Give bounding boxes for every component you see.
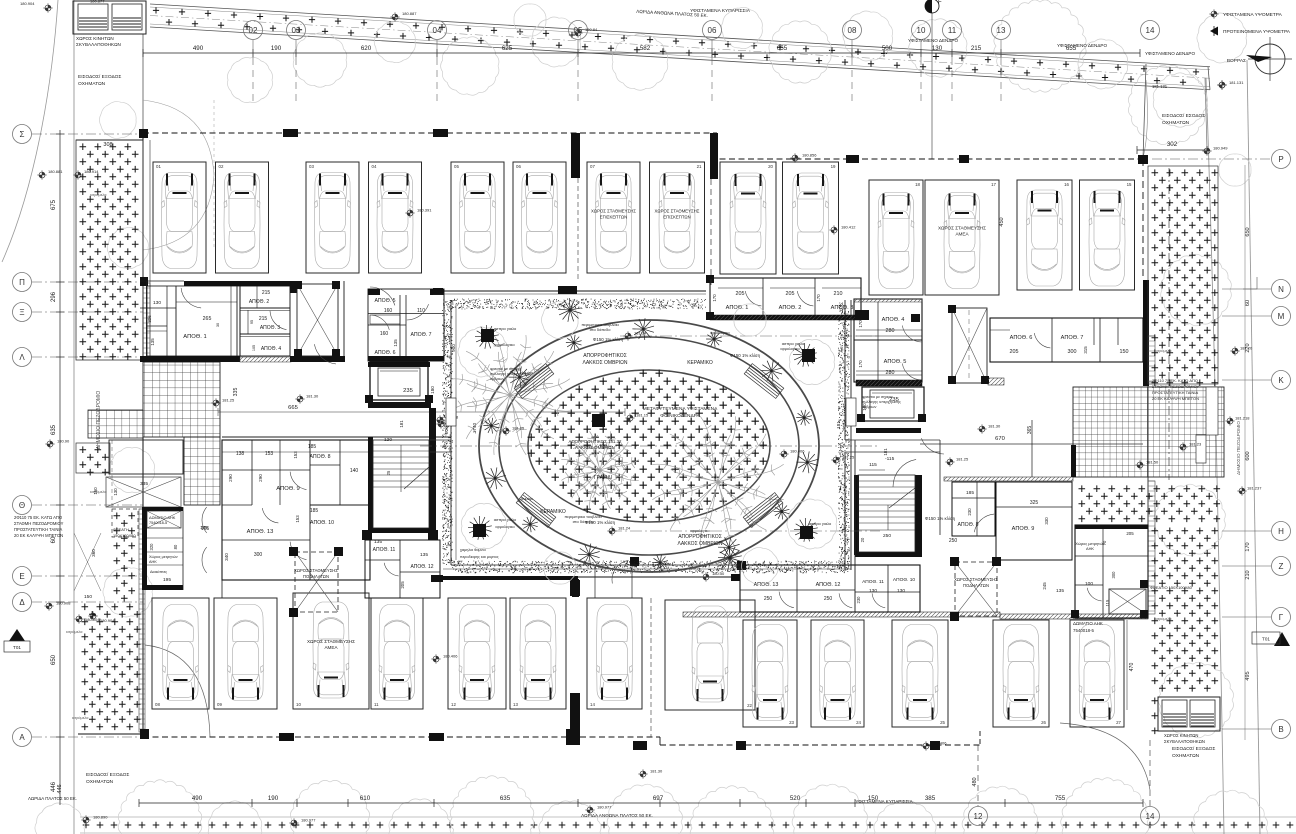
svg-text:ΑΠΟΘ. 13: ΑΠΟΘ. 13 — [754, 582, 779, 588]
svg-text:2Φ110 75 ΕΚ. ΚΑΤΩ ΑΠΟ: 2Φ110 75 ΕΚ. ΚΑΤΩ ΑΠΟ — [1152, 378, 1198, 383]
svg-text:Χώρος μετρητών: Χώρος μετρητών — [149, 555, 178, 559]
svg-text:385: 385 — [925, 795, 936, 802]
svg-text:190: 190 — [268, 795, 279, 802]
svg-text:ΑΠΟΘ. 7: ΑΠΟΘ. 7 — [410, 332, 431, 338]
svg-text:300: 300 — [1111, 571, 1116, 579]
svg-text:582: 582 — [640, 45, 651, 52]
svg-text:ΑΠΟΘ. 5: ΑΠΟΘ. 5 — [374, 298, 395, 304]
svg-text:181.25: 181.25 — [512, 426, 525, 431]
svg-text:04: 04 — [433, 26, 442, 35]
svg-text:755: 755 — [1055, 795, 1066, 802]
svg-text:ΑΠΟΘ. 7: ΑΠΟΘ. 7 — [1061, 335, 1084, 341]
svg-text:290: 290 — [258, 474, 263, 482]
svg-text:335: 335 — [140, 481, 148, 487]
svg-text:665: 665 — [288, 405, 298, 411]
svg-text:150Χ120Χ80: 150Χ120Χ80 — [113, 533, 136, 538]
svg-text:170: 170 — [858, 360, 863, 368]
svg-text:12: 12 — [451, 702, 456, 707]
svg-text:150: 150 — [84, 594, 92, 600]
svg-text:ΑΗΚ: ΑΗΚ — [1086, 546, 1094, 551]
svg-text:19: 19 — [831, 164, 836, 169]
svg-text:181: 181 — [836, 421, 841, 429]
svg-text:470: 470 — [1129, 663, 1135, 672]
svg-text:15: 15 — [1127, 182, 1132, 187]
svg-text:340: 340 — [224, 553, 229, 561]
svg-text:14: 14 — [1146, 26, 1155, 35]
svg-text:ΧΩΡΟΣ ΣΤΑΘΜΕΥΣΗΣ: ΧΩΡΟΣ ΣΤΑΘΜΕΥΣΗΣ — [655, 209, 700, 214]
svg-text:205: 205 — [1010, 349, 1019, 355]
svg-text:20 ΕΚ ΚΑΛΥΨΗ ΜΠΕΤΟΝ: 20 ΕΚ ΚΑΛΥΨΗ ΜΠΕΤΟΝ — [1152, 396, 1199, 401]
svg-text:ΠΡΟΤΕΙΝΟΜΕΝΑ ΥΨΟΜΕΤΡΑ: ΠΡΟΤΕΙΝΟΜΕΝΑ ΥΨΟΜΕΤΡΑ — [1223, 29, 1291, 35]
svg-text:180.887: 180.887 — [402, 11, 417, 16]
svg-text:100: 100 — [1085, 581, 1093, 587]
svg-text:135: 135 — [374, 539, 382, 545]
svg-text:ΕΠΙΣΚΕΠΤΩΝ: ΕΠΙΣΚΕΠΤΩΝ — [663, 215, 691, 220]
svg-text:446: 446 — [57, 784, 63, 793]
svg-text:635: 635 — [51, 424, 57, 435]
svg-text:ΛΑΚΚΟΣ ΟΜΒΡΙΩΝ: ΛΑΚΚΟΣ ΟΜΒΡΙΩΝ — [582, 360, 627, 366]
svg-text:P: P — [1278, 155, 1283, 164]
svg-text:210: 210 — [1245, 570, 1251, 579]
svg-text:215: 215 — [259, 316, 268, 322]
svg-text:900: 900 — [451, 344, 456, 352]
svg-text:κιτρόμελα: κιτρόμελα — [1155, 617, 1172, 621]
svg-text:ΑΠΟΘ. 4: ΑΠΟΘ. 4 — [882, 317, 905, 323]
svg-text:ΧΩΡΟΣ ΚΙΝΗΤΩΝ: ΧΩΡΟΣ ΚΙΝΗΤΩΝ — [1164, 733, 1198, 738]
svg-text:315: 315 — [1083, 346, 1088, 354]
svg-text:ΠΡΟΣΤΑΤΕΥΤΙΚΗ ΤΑΙΝΙΑ: ΠΡΟΣΤΑΤΕΥΤΙΚΗ ΤΑΙΝΙΑ — [1152, 390, 1199, 395]
svg-text:B: B — [1278, 725, 1283, 734]
svg-text:185: 185 — [310, 508, 319, 514]
svg-text:ΧΩΡΟΣ ΚΙΝΗΤΩΝ: ΧΩΡΟΣ ΚΙΝΗΤΩΝ — [76, 36, 114, 41]
svg-text:06: 06 — [516, 164, 521, 169]
svg-text:130: 130 — [897, 588, 905, 594]
svg-text:ΑΜΕΑ: ΑΜΕΑ — [324, 645, 338, 650]
svg-text:320: 320 — [149, 543, 154, 551]
svg-text:95: 95 — [250, 320, 254, 324]
svg-text:ΑΠΟΘ. 2: ΑΠΟΘ. 2 — [779, 305, 802, 311]
svg-text:ΚΕΡΑΜΙΚΟ: ΚΕΡΑΜΙΚΟ — [687, 360, 713, 366]
svg-text:14: 14 — [1146, 812, 1155, 821]
svg-text:185: 185 — [308, 444, 317, 450]
svg-text:180.914: 180.914 — [84, 169, 99, 174]
svg-text:ΕΙΣΟΔΟΣ/ ΕΞΟΔΟΣ: ΕΙΣΟΔΟΣ/ ΕΞΟΔΟΣ — [86, 772, 129, 778]
svg-text:1740: 1740 — [472, 422, 477, 433]
svg-text:215: 215 — [262, 290, 271, 296]
svg-text:110: 110 — [417, 308, 425, 314]
svg-text:610: 610 — [360, 795, 371, 802]
svg-text:181.50: 181.50 — [1146, 460, 1159, 465]
svg-text:φρεατιο με σιχαρα: φρεατιο με σιχαρα — [862, 395, 893, 399]
svg-text:11: 11 — [948, 26, 957, 35]
svg-text:11: 11 — [374, 702, 379, 707]
svg-text:181.34: 181.34 — [634, 331, 647, 336]
svg-text:180.406: 180.406 — [443, 654, 458, 659]
svg-text:ΑΠΟΘ. 9: ΑΠΟΘ. 9 — [1012, 526, 1035, 532]
svg-text:-115: -115 — [885, 456, 895, 462]
svg-text:ΣΚΥΒΑΛΑΠΟΘΗΚΩΝ: ΣΚΥΒΑΛΑΠΟΘΗΚΩΝ — [1164, 739, 1205, 744]
svg-text:180.881: 180.881 — [48, 169, 63, 174]
svg-text:ΧΩΡΟΣ ΣΤΑΘΜΕΥΣΗΣ: ΧΩΡΟΣ ΣΤΑΘΜΕΥΣΗΣ — [591, 209, 636, 214]
svg-text:17: 17 — [991, 182, 996, 187]
svg-text:ΑΠΟΘ. 10: ΑΠΟΘ. 10 — [893, 577, 915, 583]
svg-text:ΑΠΟΘ. 6: ΑΠΟΘ. 6 — [1010, 335, 1033, 341]
svg-text:ΒΟΡΡΑΣ: ΒΟΡΡΑΣ — [1227, 58, 1246, 64]
svg-text:215: 215 — [971, 45, 982, 52]
svg-text:01: 01 — [156, 164, 161, 169]
svg-text:250: 250 — [949, 538, 958, 544]
svg-text:κιτρόμελα: κιτρόμελα — [66, 630, 83, 634]
svg-text:300: 300 — [254, 552, 263, 558]
svg-text:170: 170 — [712, 294, 717, 302]
svg-text:920: 920 — [444, 426, 449, 434]
svg-text:490: 490 — [193, 45, 204, 52]
svg-text:ΛΑΚΚΟΣ ΟΜΒΡΙΩΝ: ΛΑΚΚΟΣ ΟΜΒΡΙΩΝ — [575, 445, 615, 450]
svg-text:Φ150 1% κλίση: Φ150 1% κλίση — [730, 353, 761, 358]
svg-text:02: 02 — [249, 26, 258, 35]
svg-text:325: 325 — [1030, 500, 1039, 506]
svg-text:ΧΩΡΟΣ ΣΤΑΘΜΕΥΣΗΣ: ΧΩΡΟΣ ΣΤΑΘΜΕΥΣΗΣ — [307, 639, 355, 644]
svg-text:ΑΠΟΘ. 11: ΑΠΟΘ. 11 — [373, 547, 396, 553]
svg-text:ΧΩΡΟΣ ΣΤΑΘΜΕΥΣΗΣ: ΧΩΡΟΣ ΣΤΑΘΜΕΥΣΗΣ — [938, 226, 986, 231]
svg-text:Φ150 1% κλίση: Φ150 1% κλίση — [593, 337, 624, 342]
svg-text:130: 130 — [869, 588, 877, 594]
svg-text:230: 230 — [967, 508, 972, 516]
svg-text:ΑΗΚ: ΑΗΚ — [149, 560, 157, 564]
svg-text:23: 23 — [789, 720, 794, 725]
svg-text:14: 14 — [590, 702, 595, 707]
svg-text:500: 500 — [882, 45, 893, 52]
svg-text:21: 21 — [697, 164, 702, 169]
svg-text:ΠΟΔΗΛΑΤΩΝ: ΠΟΔΗΛΑΤΩΝ — [963, 583, 989, 588]
svg-text:300: 300 — [1068, 349, 1077, 355]
svg-text:Σ: Σ — [20, 130, 25, 139]
svg-text:10: 10 — [296, 702, 301, 707]
svg-text:180.84: 180.84 — [585, 27, 598, 32]
svg-text:250: 250 — [824, 596, 833, 602]
svg-text:ΑΠΟΘ. 12: ΑΠΟΘ. 12 — [816, 582, 841, 588]
svg-text:ΑΠΟΡΡΟΦΗΤΙΚΟΣ: ΑΠΟΡΡΟΦΗΤΙΚΟΣ — [583, 353, 627, 359]
svg-text:Θ: Θ — [19, 501, 25, 510]
svg-text:H: H — [1278, 527, 1284, 536]
svg-text:F: F — [938, 0, 942, 6]
svg-text:170: 170 — [816, 294, 821, 302]
svg-text:170: 170 — [858, 320, 863, 328]
svg-text:181.131: 181.131 — [1152, 84, 1168, 89]
svg-text:205: 205 — [1126, 531, 1134, 536]
svg-text:ΑΠΟΘ. 12: ΑΠΟΘ. 12 — [410, 564, 433, 570]
svg-text:180.30: 180.30 — [712, 571, 725, 576]
svg-text:181: 181 — [399, 420, 404, 428]
svg-text:335: 335 — [233, 388, 239, 397]
svg-text:140: 140 — [350, 468, 359, 474]
svg-text:450: 450 — [999, 217, 1005, 226]
svg-text:135: 135 — [393, 339, 398, 347]
svg-text:ΥΦΙΣΤΑΜΕΝΟ ΔΕΝΔΡΟ: ΥΦΙΣΤΑΜΕΝΟ ΔΕΝΔΡΟ — [1057, 43, 1108, 48]
svg-text:280: 280 — [886, 328, 895, 334]
svg-text:138: 138 — [236, 451, 245, 457]
svg-text:105: 105 — [252, 345, 256, 351]
svg-text:130: 130 — [113, 488, 118, 496]
svg-text:280: 280 — [886, 370, 895, 376]
svg-text:03: 03 — [309, 164, 314, 169]
svg-text:ΥΦΙΣΤΑΜΕΝΑ ΚΥΠΑΡΙΣΣΙΑ: ΥΦΙΣΤΑΜΕΝΑ ΚΥΠΑΡΙΣΣΙΑ — [855, 799, 913, 804]
svg-text:195: 195 — [163, 577, 171, 583]
svg-text:180.977: 180.977 — [301, 818, 316, 823]
svg-text:ΑΠΟΘ. 3: ΑΠΟΘ. 3 — [260, 325, 281, 331]
svg-text:290: 290 — [228, 474, 233, 482]
svg-text:180.90: 180.90 — [57, 439, 70, 444]
svg-text:ΔΩΜΑΤΙΟ ΑΗΚ: ΔΩΜΑΤΙΟ ΑΗΚ — [149, 515, 176, 520]
svg-text:180.904: 180.904 — [20, 1, 35, 6]
svg-text:181.30: 181.30 — [988, 424, 1001, 429]
svg-text:330: 330 — [1044, 517, 1049, 525]
svg-text:ΑΠΟΘ. 6: ΑΠΟΘ. 6 — [374, 350, 395, 356]
svg-text:650: 650 — [1245, 227, 1251, 236]
svg-text:302: 302 — [1167, 141, 1178, 148]
svg-text:ΦΡΕΑΤΙΟ 150Χ100Χ80: ΦΡΕΑΤΙΟ 150Χ100Χ80 — [1150, 585, 1193, 590]
svg-text:18: 18 — [915, 182, 920, 187]
svg-text:Δ: Δ — [19, 598, 25, 607]
svg-text:ΛΑΚΚΟΣ ΟΜΒΡΙΩΝ: ΛΑΚΚΟΣ ΟΜΒΡΙΩΝ — [677, 541, 722, 547]
svg-text:ΟΧΗΜΑΤΩΝ: ΟΧΗΜΑΤΩΝ — [1172, 753, 1200, 759]
svg-text:205: 205 — [736, 291, 745, 297]
svg-text:ΑΠΟΘ. 5: ΑΠΟΘ. 5 — [884, 359, 907, 365]
svg-text:συλλογης υπερχηλισης: συλλογης υπερχηλισης — [490, 372, 529, 376]
svg-text:ΔΗΜΟΣΙΟ ΠΕΖΟΔΡΟΜΙΟ: ΔΗΜΟΣΙΟ ΠΕΖΟΔΡΟΜΙΟ — [1236, 421, 1241, 475]
svg-text:24: 24 — [856, 720, 861, 725]
svg-text:180.877: 180.877 — [90, 0, 105, 4]
svg-text:25: 25 — [386, 470, 391, 475]
svg-text:Φ150 1% κλίση: Φ150 1% κλίση — [925, 516, 956, 521]
svg-text:ΑΜΕΑ: ΑΜΕΑ — [955, 232, 969, 237]
svg-text:135: 135 — [420, 552, 428, 558]
svg-text:ΛΩΡΙΔΑ ΠΛΑΤΟΣ 50 ΕΚ.: ΛΩΡΙΔΑ ΠΛΑΤΟΣ 50 ΕΚ. — [28, 796, 77, 801]
svg-text:ΑΠΟΘ. 9: ΑΠΟΘ. 9 — [276, 486, 300, 492]
svg-text:181.30: 181.30 — [306, 394, 319, 399]
svg-text:ΟΧΗΜΑΤΩΝ: ΟΧΗΜΑΤΩΝ — [86, 779, 114, 785]
svg-text:153: 153 — [265, 451, 274, 457]
svg-text:22: 22 — [747, 703, 752, 708]
svg-text:7540018-5: 7540018-5 — [149, 521, 167, 525]
svg-text:Γ: Γ — [1279, 613, 1284, 622]
svg-text:ομβριων: ομβριων — [490, 377, 504, 381]
svg-text:07: 07 — [590, 164, 595, 169]
svg-text:ΑΠΟΘ. 13: ΑΠΟΘ. 13 — [247, 529, 274, 535]
svg-text:T01: T01 — [1262, 637, 1270, 642]
svg-text:181.218: 181.218 — [1235, 416, 1250, 421]
svg-text:ΚΕΡΑΜΙΚΟ: ΚΕΡΑΜΙΚΟ — [540, 509, 566, 515]
svg-text:κιτρόμελα: κιτρόμελα — [90, 193, 107, 197]
svg-text:181.15: 181.15 — [636, 413, 649, 418]
svg-text:08: 08 — [155, 702, 160, 707]
svg-text:Α: Α — [19, 733, 25, 742]
svg-text:συλλογης υπερχηλισης: συλλογης υπερχηλισης — [862, 400, 901, 404]
svg-text:T01: T01 — [13, 645, 21, 650]
svg-text:181.25: 181.25 — [222, 398, 235, 403]
svg-text:181.25: 181.25 — [842, 455, 855, 460]
svg-text:ΕΙΣΟΔΟΣ/ ΕΣΟΔΟΣ: ΕΙΣΟΔΟΣ/ ΕΣΟΔΟΣ — [1162, 113, 1205, 119]
svg-text:ΑΠΟΡΡΟΦΗΤΙΚΟΣ: ΑΠΟΡΡΟΦΗΤΙΚΟΣ — [678, 534, 722, 540]
svg-text:ΥΦΙΣΤΑΜΕΝΟ ΔΕΝΔΡΟ: ΥΦΙΣΤΑΜΕΝΟ ΔΕΝΔΡΟ — [908, 38, 959, 43]
svg-text:181.20: 181.20 — [1240, 346, 1253, 351]
svg-text:180.856: 180.856 — [802, 153, 817, 158]
svg-text:105: 105 — [200, 525, 208, 530]
svg-text:Διακόπτες: Διακόπτες — [150, 570, 167, 574]
svg-text:ΑΠΟΘ. 1: ΑΠΟΘ. 1 — [183, 334, 207, 340]
svg-text:Ε: Ε — [19, 572, 24, 581]
svg-text:160: 160 — [384, 308, 393, 314]
svg-text:ΟΧΗΜΑΤΩΝ: ΟΧΗΜΑΤΩΝ — [78, 81, 106, 87]
svg-text:205: 205 — [400, 581, 405, 589]
svg-text:ΑΠΟΘ. 10: ΑΠΟΘ. 10 — [310, 520, 334, 526]
svg-text:150: 150 — [1120, 349, 1129, 355]
svg-text:620: 620 — [361, 45, 372, 52]
svg-text:N: N — [1278, 285, 1284, 294]
svg-text:αρμολογικο: αρμολογικο — [780, 347, 799, 351]
svg-text:στο δάπεδο: στο δάπεδο — [590, 327, 612, 332]
svg-text:70: 70 — [1102, 540, 1107, 545]
svg-text:180.949: 180.949 — [1213, 146, 1228, 151]
svg-text:60: 60 — [1245, 300, 1251, 306]
svg-text:600: 600 — [1245, 451, 1251, 460]
svg-text:Λ: Λ — [19, 353, 25, 362]
svg-text:ΦΟΙΝΙΚΟΔΕΝΔΡΑ: ΦΟΙΝΙΚΟΔΕΝΔΡΑ — [660, 413, 700, 419]
svg-text:25: 25 — [940, 720, 945, 725]
svg-text:308: 308 — [103, 142, 112, 148]
svg-text:27: 27 — [1116, 720, 1121, 725]
svg-text:ΠΟΔΗΛΑΤΩΝ: ΠΟΔΗΛΑΤΩΝ — [303, 574, 329, 579]
svg-text:181.24: 181.24 — [618, 526, 631, 531]
svg-text:180.391: 180.391 — [417, 208, 432, 213]
svg-text:ΛΩΡΙΔΑ ΑΝΘΩΝΑ ΠΛΑΤΟΣ 50 ΕΚ.: ΛΩΡΙΔΑ ΑΝΘΩΝΑ ΠΛΑΤΟΣ 50 ΕΚ. — [581, 813, 653, 818]
svg-text:05: 05 — [454, 164, 459, 169]
svg-text:2Φ110 75 ΕΚ. ΚΑΤΩ ΑΠΟ: 2Φ110 75 ΕΚ. ΚΑΤΩ ΑΠΟ — [14, 515, 63, 520]
svg-text:θυμάρι: θυμάρι — [521, 497, 533, 501]
svg-text:κιτρόμελα: κιτρόμελα — [1155, 349, 1172, 353]
svg-text:ΕΙΣΟΔΟΣ/ ΕΞΟΔΟΣ: ΕΙΣΟΔΟΣ/ ΕΞΟΔΟΣ — [78, 74, 121, 80]
svg-text:7540018-5: 7540018-5 — [1073, 628, 1095, 633]
svg-text:στο δάπεδο: στο δάπεδο — [573, 519, 595, 524]
svg-text:20: 20 — [768, 164, 773, 169]
svg-text:ΦΡΕΑΤΗ: ΦΡΕΑΤΗ — [113, 527, 129, 532]
svg-text:360: 360 — [91, 549, 96, 557]
svg-text:03: 03 — [292, 26, 301, 35]
svg-text:180.908: 180.908 — [56, 601, 71, 606]
svg-text:ΣΚΥΒΑΛΑΠΟΘΗΚΩΝ: ΣΚΥΒΑΛΑΠΟΘΗΚΩΝ — [76, 42, 121, 47]
svg-text:ΑΠΟΘ. 8: ΑΠΟΘ. 8 — [957, 522, 978, 528]
svg-text:675: 675 — [51, 199, 57, 210]
svg-text:181.30: 181.30 — [650, 769, 663, 774]
svg-text:26: 26 — [1041, 720, 1046, 725]
svg-text:ΑΠΟΘ. 4: ΑΠΟΘ. 4 — [261, 346, 282, 352]
svg-text:αρμολογικο: αρμολογικο — [710, 331, 729, 335]
svg-text:20 ΕΚ ΚΑΛΥΨΗ ΜΠΕΤΟΝ: 20 ΕΚ ΚΑΛΥΨΗ ΜΠΕΤΟΝ — [14, 533, 63, 538]
svg-text:180.412: 180.412 — [841, 225, 856, 230]
svg-text:245: 245 — [1042, 582, 1047, 590]
svg-text:13: 13 — [513, 702, 518, 707]
svg-text:Ξ: Ξ — [19, 308, 24, 317]
svg-text:02: 02 — [219, 164, 224, 169]
svg-text:181.237: 181.237 — [1247, 486, 1262, 491]
svg-text:10: 10 — [917, 26, 926, 35]
svg-text:181.25: 181.25 — [956, 457, 969, 462]
svg-text:495: 495 — [1245, 671, 1251, 680]
svg-text:φρεατιο με σιχαρα: φρεατιο με σιχαρα — [490, 367, 521, 371]
svg-text:12: 12 — [974, 812, 983, 821]
svg-text:670: 670 — [995, 436, 1005, 442]
svg-text:ΥΦΙΣΤΑΜΕΝΟ ΔΕΝΔΡΟ: ΥΦΙΣΤΑΜΕΝΟ ΔΕΝΔΡΟ — [1145, 51, 1196, 56]
svg-text:αρμολογικο: αρμολογικο — [690, 529, 709, 533]
svg-text:ΜΕΤΑΦΥΤΕΥΜΕΝΑ ΥΦΙΣΤΑΜΕΝΑ: ΜΕΤΑΦΥΤΕΥΜΕΝΑ ΥΦΙΣΤΑΜΕΝΑ — [643, 406, 718, 412]
svg-text:210: 210 — [834, 291, 843, 297]
svg-text:180.890: 180.890 — [93, 815, 108, 820]
svg-text:13: 13 — [997, 26, 1006, 35]
svg-text:09: 09 — [217, 702, 222, 707]
svg-text:180.406: 180.406 — [790, 449, 805, 454]
svg-text:135: 135 — [1056, 588, 1064, 594]
svg-text:06: 06 — [708, 26, 717, 35]
svg-text:180.977: 180.977 — [597, 805, 612, 810]
svg-text:130: 130 — [153, 300, 161, 306]
svg-text:ΧΩΡΟΣ ΣΤΑΘΜΕΥΣΗΣ: ΧΩΡΟΣ ΣΤΑΘΜΕΥΣΗΣ — [954, 577, 998, 582]
svg-text:16: 16 — [1064, 182, 1069, 187]
svg-text:ΟΧΗΜΑΤΩΝ: ΟΧΗΜΑΤΩΝ — [1162, 120, 1190, 126]
svg-text:ασπρο γιαλο: ασπρο γιαλο — [494, 517, 517, 522]
svg-text:ΑΠΟΘ. 8: ΑΠΟΘ. 8 — [309, 454, 330, 460]
svg-text:235: 235 — [403, 388, 413, 394]
svg-text:181.23: 181.23 — [1189, 442, 1202, 447]
svg-text:180: 180 — [430, 386, 435, 394]
svg-text:08: 08 — [848, 26, 857, 35]
svg-text:αρμολογικο: αρμολογικο — [495, 525, 514, 529]
svg-text:181.131: 181.131 — [1229, 80, 1244, 85]
svg-text:ΑΠΟΘ. 2: ΑΠΟΘ. 2 — [249, 299, 270, 305]
svg-text:296: 296 — [51, 291, 57, 302]
svg-text:650: 650 — [51, 654, 57, 665]
svg-text:265: 265 — [203, 316, 212, 322]
svg-text:490: 490 — [192, 795, 203, 802]
svg-text:160: 160 — [380, 331, 389, 337]
svg-text:Z: Z — [1279, 562, 1284, 571]
svg-text:180.904: 180.904 — [85, 617, 100, 622]
svg-text:520: 520 — [790, 795, 801, 802]
svg-text:αρμολογικο: αρμολογικο — [495, 343, 514, 347]
svg-text:ΓΡΑΣΙΔΙ: ΓΡΑΣΙΔΙ — [594, 475, 612, 481]
svg-text:ΣΤΑΘΜΗ ΠΕΖΟΔΡΟΜΙΟΥ: ΣΤΑΘΜΗ ΠΕΖΟΔΡΟΜΙΟΥ — [14, 521, 64, 526]
svg-text:ΑΠΟΡΡΟΦΗΤΙΚΟΣ 181.32: ΑΠΟΡΡΟΦΗΤΙΚΟΣ 181.32 — [569, 439, 622, 444]
svg-text:Π: Π — [19, 278, 25, 287]
svg-text:χαμηλοι θαμνοι: χαμηλοι θαμνοι — [460, 548, 486, 552]
svg-text:697: 697 — [653, 795, 664, 802]
svg-text:80: 80 — [173, 544, 178, 549]
svg-text:153: 153 — [293, 451, 298, 459]
svg-text:185: 185 — [966, 490, 974, 496]
svg-text:ΔΩΜΑΤΙΟ ΑΗΚ: ΔΩΜΑΤΙΟ ΑΗΚ — [1073, 621, 1103, 626]
svg-text:κιτρόμελα: κιτρόμελα — [72, 716, 89, 720]
svg-text:205: 205 — [786, 291, 795, 297]
svg-text:M: M — [1278, 312, 1285, 321]
svg-text:ΕΠΙΣΚΕΠΤΩΝ: ΕΠΙΣΚΕΠΤΩΝ — [600, 215, 628, 220]
svg-text:170: 170 — [1245, 542, 1251, 551]
svg-text:ομβριων: ομβριων — [862, 405, 876, 409]
svg-text:περοδιαρης και μυρτος: περοδιαρης και μυρτος — [460, 555, 499, 559]
svg-text:ΧΩΡΟΣ ΣΤΑΘΜΕΥΣΗΣ: ΧΩΡΟΣ ΣΤΑΘΜΕΥΣΗΣ — [294, 568, 338, 573]
svg-text:635: 635 — [500, 795, 511, 802]
svg-text:153: 153 — [295, 515, 300, 523]
svg-text:ΠΡΟΣΤΑΤΕΥΤΙΚΗ ΤΑΙΝΙΑ: ΠΡΟΣΤΑΤΕΥΤΙΚΗ ΤΑΙΝΙΑ — [14, 527, 63, 532]
svg-text:ΑΠΟΘ. 11: ΑΠΟΘ. 11 — [862, 579, 884, 585]
